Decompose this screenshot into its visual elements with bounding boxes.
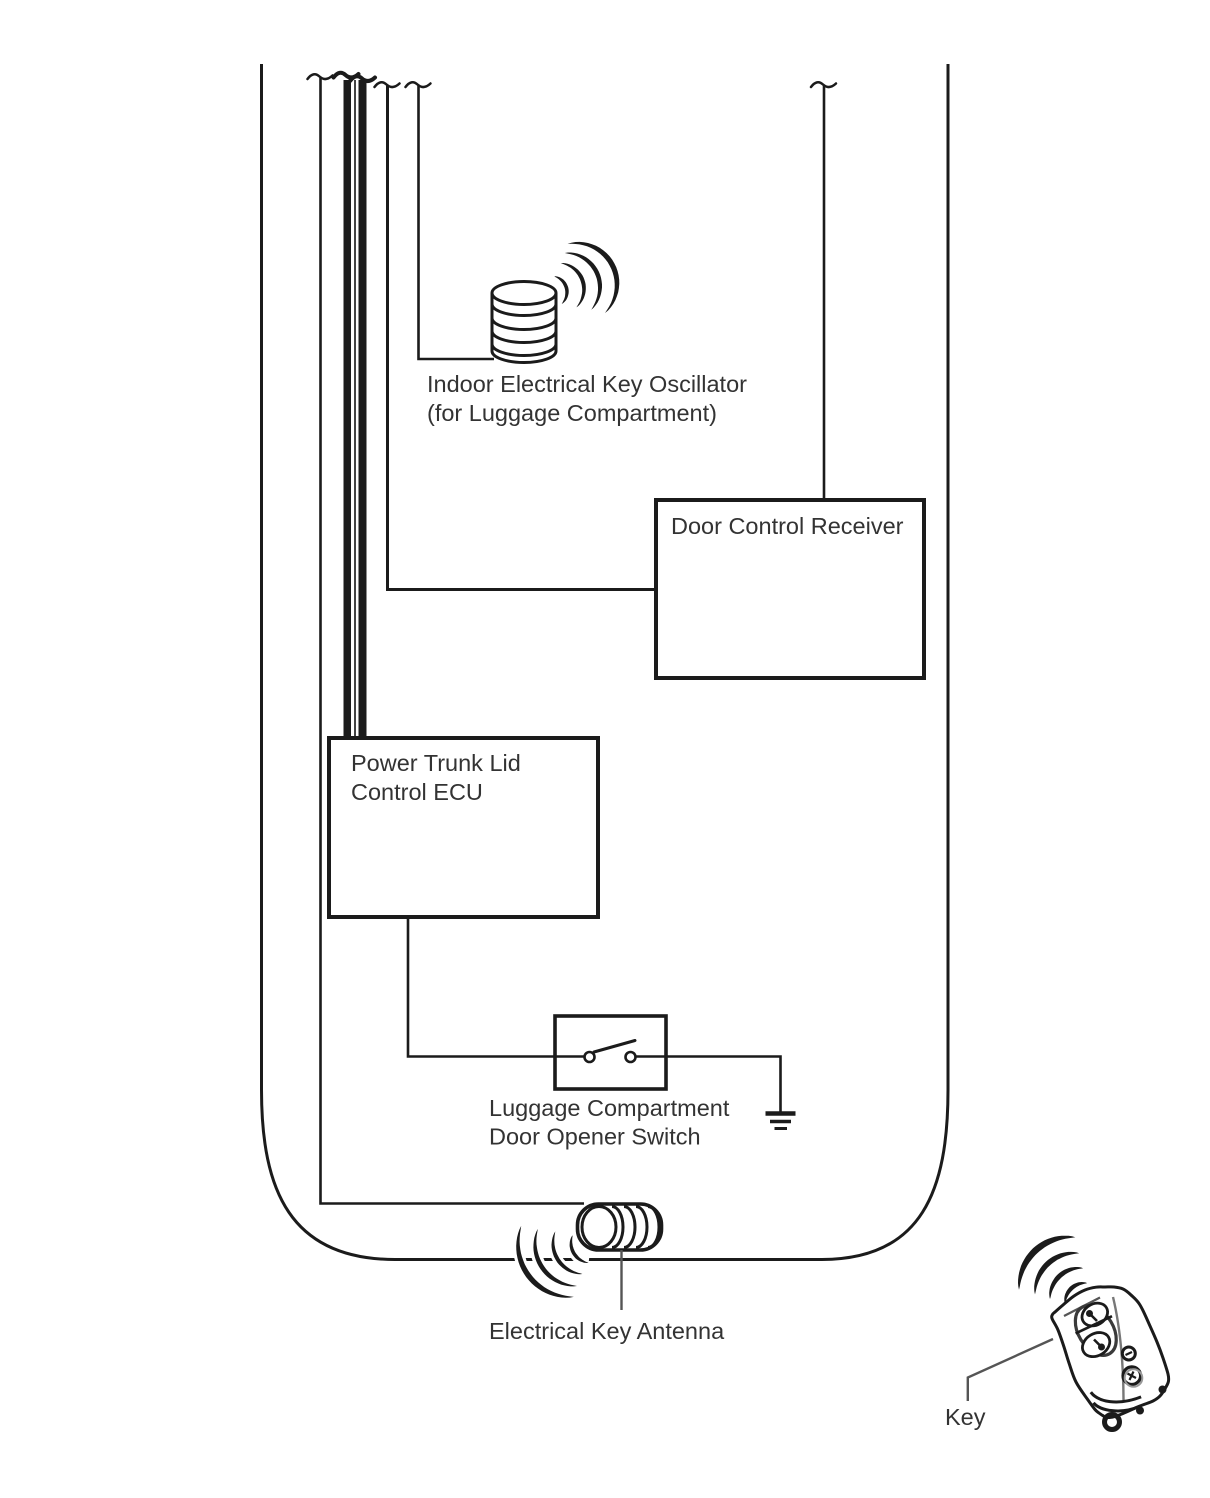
- svg-text:(for Luggage Compartment): (for Luggage Compartment): [427, 400, 717, 426]
- svg-text:Indoor Electrical Key Oscillat: Indoor Electrical Key Oscillator: [427, 371, 747, 397]
- svg-text:Control ECU: Control ECU: [351, 779, 483, 805]
- svg-text:Door Control Receiver: Door Control Receiver: [671, 513, 904, 539]
- svg-text:Luggage Compartment: Luggage Compartment: [489, 1095, 730, 1121]
- svg-text:Door Opener Switch: Door Opener Switch: [489, 1124, 701, 1150]
- svg-text:Key: Key: [945, 1404, 986, 1430]
- svg-text:Power Trunk Lid: Power Trunk Lid: [351, 750, 521, 776]
- svg-text:Electrical Key Antenna: Electrical Key Antenna: [489, 1318, 725, 1344]
